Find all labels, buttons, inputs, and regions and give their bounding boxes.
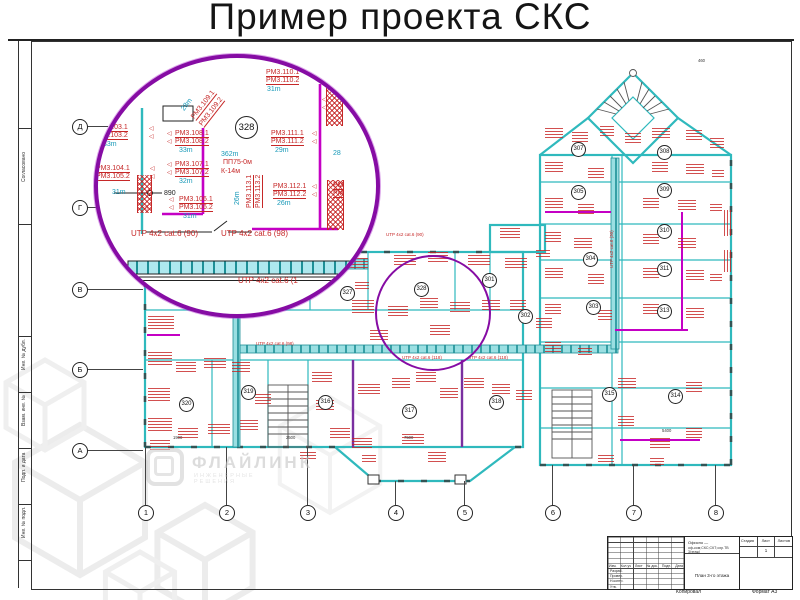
page-title: Пример проекта СКС (0, 0, 800, 38)
drawing-frame (31, 41, 792, 590)
stamp-sign-row: Н.контр. (610, 579, 623, 584)
strip-rotated-label: Инв. № дубл. (21, 356, 27, 370)
strip-rotated-label: Согласовано (21, 168, 27, 182)
stamp-header-cell: Изм. (609, 564, 617, 568)
title-block: Изм.Кол.учЛист№ док.Подп.Дата Разраб.Про… (607, 536, 793, 590)
strip-rotated-label: Взам. инв. № (21, 412, 27, 426)
stamp-header-cell: Подп. (662, 564, 671, 568)
kopiroval-label: Копировал (676, 589, 701, 595)
stamp-stage-cell: Лист (762, 539, 770, 543)
left-margin-strip (18, 41, 19, 588)
stamp-stage-cell: Листов (778, 539, 790, 543)
strip-divider (18, 504, 31, 505)
strip-divider (18, 128, 31, 129)
stamp-header-cell: Дата (675, 564, 683, 568)
strip-divider (18, 392, 31, 393)
stamp-header-cell: Кол.уч (621, 564, 632, 568)
stamp-stage-cell: Стадия (741, 539, 754, 543)
drawing-page: Пример проекта СКС (0, 0, 800, 600)
stamp-header-cell: Лист (635, 564, 643, 568)
strip-divider (18, 336, 31, 337)
stamp-header-cell: № док. (647, 564, 658, 568)
stamp-sign-row: Утв. (610, 585, 623, 590)
format-label: Формат А3 (752, 589, 777, 595)
strip-divider (18, 224, 31, 225)
project-name: Офисно — (688, 540, 736, 545)
sheet-number: 1 (760, 548, 772, 553)
strip-divider (18, 448, 31, 449)
strip-divider (18, 560, 31, 561)
strip-rotated-label: Подп. и дата (21, 468, 27, 482)
title-underline (8, 39, 794, 41)
strip-rotated-label: Инв. № подл. (21, 524, 27, 538)
sheet-title: План 3-го этажа (688, 573, 736, 578)
